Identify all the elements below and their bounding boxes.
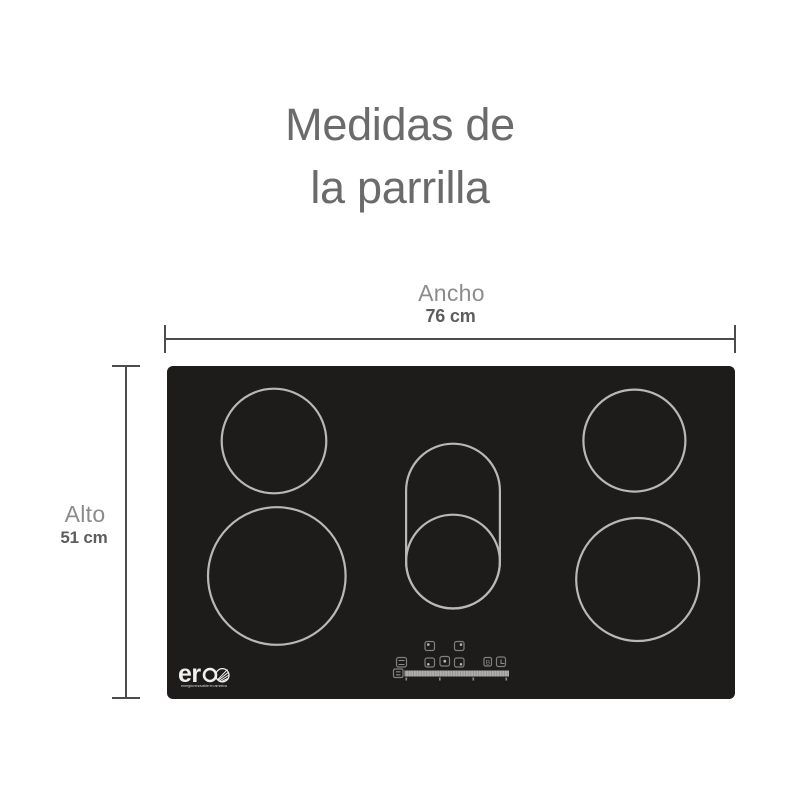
svg-text:B: B [486,660,490,667]
svg-text:energia renovable en america: energia renovable en america [181,683,228,688]
